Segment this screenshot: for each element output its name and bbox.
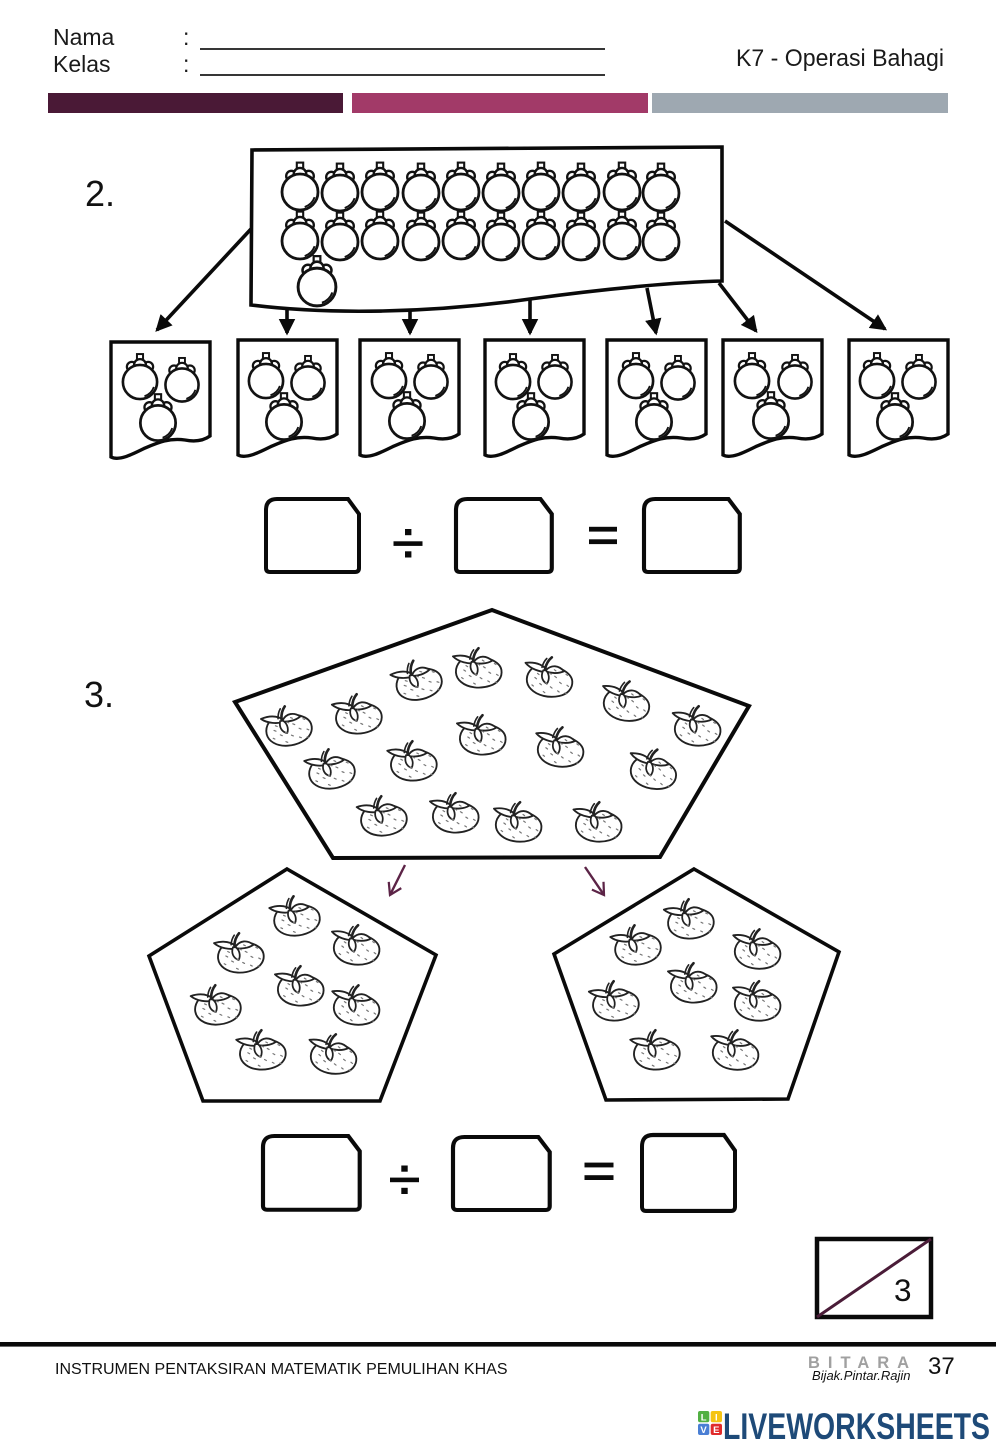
svg-text:LIVEWORKSHEETS: LIVEWORKSHEETS bbox=[723, 1406, 990, 1443]
svg-text::: : bbox=[183, 51, 189, 77]
svg-text:37: 37 bbox=[928, 1353, 955, 1380]
svg-text:2.: 2. bbox=[85, 173, 115, 214]
svg-text:I: I bbox=[715, 1413, 718, 1424]
svg-text:Bijak.Pintar.Rajin: Bijak.Pintar.Rajin bbox=[812, 1368, 911, 1383]
svg-text:Nama: Nama bbox=[53, 24, 115, 50]
svg-text:V: V bbox=[700, 1425, 707, 1436]
svg-text::: : bbox=[183, 24, 189, 50]
svg-text:K7 - Operasi Bahagi: K7 - Operasi Bahagi bbox=[736, 45, 944, 72]
svg-text:Kelas: Kelas bbox=[53, 51, 111, 77]
svg-text:E: E bbox=[713, 1425, 719, 1436]
svg-text:L: L bbox=[701, 1413, 707, 1424]
svg-text:3.: 3. bbox=[84, 674, 114, 715]
svg-text:3: 3 bbox=[894, 1272, 912, 1308]
svg-text:INSTRUMEN PENTAKSIRAN MATEMATI: INSTRUMEN PENTAKSIRAN MATEMATIK PEMULIHA… bbox=[55, 1361, 508, 1378]
